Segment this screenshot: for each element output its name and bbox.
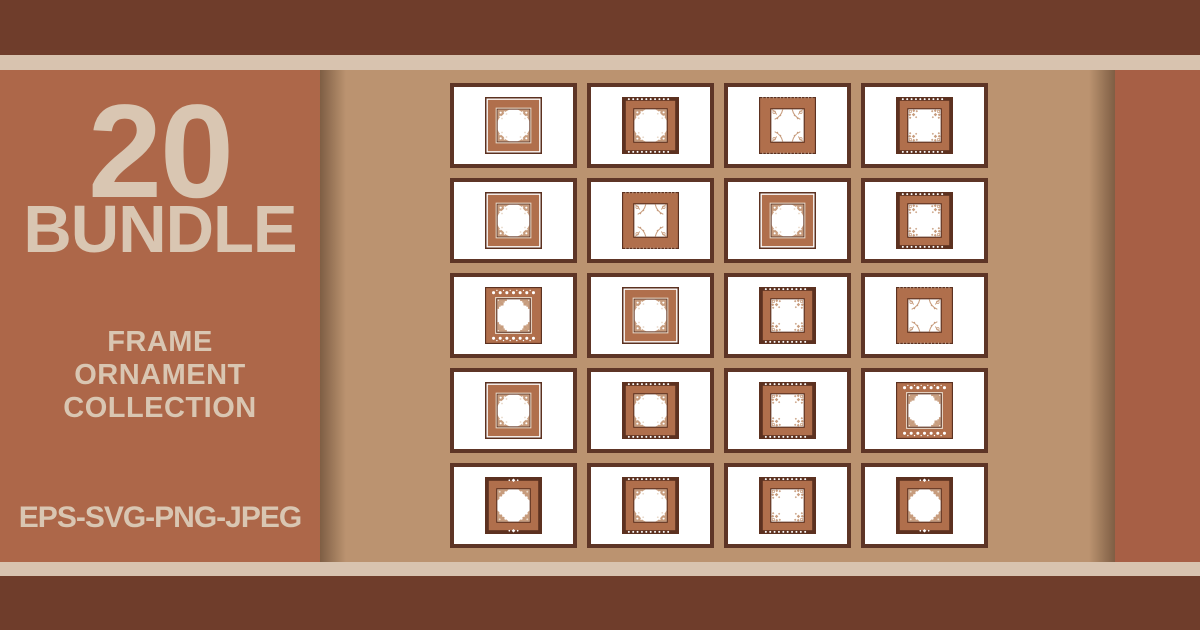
top-bar: [0, 0, 1200, 55]
ornament-card-11: [724, 273, 851, 358]
ornament-card-12: [861, 273, 988, 358]
ornament-card-7: [724, 178, 851, 263]
ornament-frame-graphic: [896, 97, 953, 154]
ornament-frame-graphic: [759, 192, 816, 249]
ornament-frame-graphic: [896, 477, 953, 534]
ornament-frame-graphic: [485, 382, 542, 439]
ornament-card-10: [587, 273, 714, 358]
ornament-frame-graphic: [485, 97, 542, 154]
file-formats-label: EPS-SVG-PNG-JPEG: [0, 503, 320, 533]
ornament-frame-graphic: [485, 287, 542, 344]
ornament-frame-graphic: [896, 192, 953, 249]
bottom-bar: [0, 576, 1200, 630]
ornament-frame-graphic: [622, 287, 679, 344]
ornament-card-9: [450, 273, 577, 358]
ornament-card-4: [861, 83, 988, 168]
ornament-frame-graphic: [485, 477, 542, 534]
collection-title-line-2: ORNAMENT: [0, 359, 320, 392]
ornament-card-15: [724, 368, 851, 453]
poster: 20 BUNDLE FRAME ORNAMENT COLLECTION EPS-…: [0, 0, 1200, 630]
ornament-frames-grid: [320, 70, 1115, 562]
ornament-card-3: [724, 83, 851, 168]
ornament-frame-graphic: [759, 287, 816, 344]
ornament-card-6: [587, 178, 714, 263]
ornament-frame-graphic: [622, 477, 679, 534]
collection-title-line-1: FRAME: [0, 326, 320, 359]
content: 20 BUNDLE FRAME ORNAMENT COLLECTION EPS-…: [0, 70, 1200, 562]
ornament-card-8: [861, 178, 988, 263]
ornament-card-20: [861, 463, 988, 548]
ornament-frame-graphic: [759, 382, 816, 439]
ornament-frame-graphic: [622, 97, 679, 154]
ornament-card-19: [724, 463, 851, 548]
ornament-card-1: [450, 83, 577, 168]
ornament-frame-graphic: [622, 192, 679, 249]
ornament-card-2: [587, 83, 714, 168]
collection-title-line-3: COLLECTION: [0, 392, 320, 425]
ornament-card-13: [450, 368, 577, 453]
collection-title: FRAME ORNAMENT COLLECTION: [0, 326, 320, 425]
bundle-count-label: BUNDLE: [0, 196, 320, 263]
top-stripe: [0, 55, 1200, 70]
right-panel: [1115, 70, 1200, 562]
ornament-frame-graphic: [622, 382, 679, 439]
bottom-stripe: [0, 562, 1200, 576]
ornament-card-14: [587, 368, 714, 453]
ornament-frame-graphic: [759, 477, 816, 534]
ornament-frame-graphic: [759, 97, 816, 154]
ornament-card-17: [450, 463, 577, 548]
left-panel: 20 BUNDLE FRAME ORNAMENT COLLECTION EPS-…: [0, 70, 320, 562]
ornament-card-16: [861, 368, 988, 453]
ornament-frame-graphic: [896, 382, 953, 439]
ornament-frame-graphic: [485, 192, 542, 249]
ornament-card-18: [587, 463, 714, 548]
ornament-frame-graphic: [896, 287, 953, 344]
ornament-card-5: [450, 178, 577, 263]
